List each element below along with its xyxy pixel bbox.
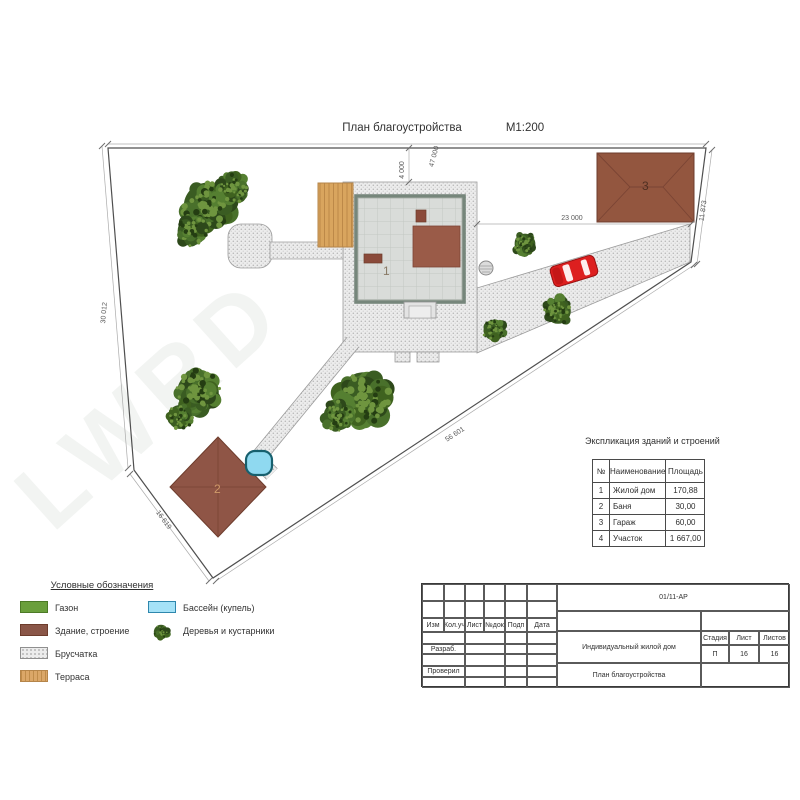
explication: Экспликация зданий и строений № Наименов… bbox=[585, 436, 720, 547]
cell-area: 30,00 bbox=[666, 499, 705, 515]
pool bbox=[246, 451, 272, 475]
legend-title: Условные обозначения bbox=[37, 580, 167, 591]
explication-table: № Наименование Площадь 1 Жилой дом 170,8… bbox=[592, 459, 705, 547]
terrace-deck bbox=[318, 183, 353, 247]
tb-sheet-title: План благоустройства bbox=[557, 663, 701, 688]
tree-icon bbox=[150, 621, 172, 643]
label-house: 1 bbox=[383, 264, 390, 278]
tb-stage-col: Листов bbox=[759, 631, 790, 645]
cell-num: 3 bbox=[593, 515, 610, 531]
tb-rev-col: Лист bbox=[465, 618, 484, 632]
cell-name: Гараж bbox=[610, 515, 666, 531]
col-area: Площадь bbox=[666, 460, 705, 483]
legend-label: Деревья и кустарники bbox=[183, 626, 274, 636]
col-name: Наименование bbox=[610, 460, 666, 483]
title-block: Изм Кол.уч Лист №док Подп Дата Разраб. П… bbox=[421, 583, 789, 687]
building-swatch bbox=[20, 624, 48, 636]
cell-area: 60,00 bbox=[666, 515, 705, 531]
dim-diagonal: 56 601 bbox=[444, 426, 466, 444]
table-header-row: № Наименование Площадь bbox=[593, 460, 705, 483]
legend-label: Здание, строение bbox=[55, 626, 129, 636]
roof-hatch bbox=[364, 254, 382, 263]
table-row: 1 Жилой дом 170,88 bbox=[593, 483, 705, 499]
dim-left: 30 012 bbox=[100, 302, 109, 324]
paving-swatch bbox=[20, 647, 48, 659]
explication-title: Экспликация зданий и строений bbox=[585, 436, 720, 446]
terrace-swatch bbox=[20, 670, 48, 682]
tb-project-name: Индивидуальный жилой дом bbox=[557, 631, 701, 663]
tb-role: Разраб. bbox=[422, 644, 465, 654]
pool-swatch bbox=[148, 601, 176, 613]
table-row: 2 Баня 30,00 bbox=[593, 499, 705, 515]
legend-label: Газон bbox=[55, 603, 78, 613]
table-row: 4 Участок 1 667,00 bbox=[593, 531, 705, 547]
tb-rev-col: Кол.уч bbox=[444, 618, 465, 632]
dim-house-offset: 4 000 bbox=[399, 161, 406, 179]
col-num: № bbox=[593, 460, 610, 483]
patio bbox=[228, 224, 272, 268]
label-garage: 3 bbox=[642, 179, 649, 193]
chimney bbox=[416, 210, 426, 222]
tb-rev-col: Подп bbox=[505, 618, 527, 632]
legend-label: Бассейн (купель) bbox=[183, 603, 254, 613]
legend-label: Брусчатка bbox=[55, 649, 97, 659]
label-bath: 2 bbox=[214, 482, 221, 496]
manhole bbox=[479, 261, 493, 275]
tb-rev-col: Дата bbox=[527, 618, 557, 632]
cell-name: Участок bbox=[610, 531, 666, 547]
legend-label: Терраса bbox=[55, 672, 90, 682]
cell-area: 170,88 bbox=[666, 483, 705, 499]
cell-num: 2 bbox=[593, 499, 610, 515]
cell-num: 1 bbox=[593, 483, 610, 499]
cell-name: Баня bbox=[610, 499, 666, 515]
cell-area: 1 667,00 bbox=[666, 531, 705, 547]
dim-garage-offset: 23 000 bbox=[561, 215, 583, 222]
tb-role: Проверил bbox=[422, 666, 465, 677]
table-row: 3 Гараж 60,00 bbox=[593, 515, 705, 531]
tb-stage-value: П bbox=[701, 645, 729, 663]
tb-rev-col: Изм bbox=[422, 618, 444, 632]
cell-num: 4 bbox=[593, 531, 610, 547]
tb-doc-number: 01/11-АР bbox=[557, 584, 790, 611]
lawn-swatch bbox=[20, 601, 48, 613]
site-plan-sheet: LWRD План благоустройства М1:200 bbox=[0, 0, 800, 800]
tb-stage-value: 16 bbox=[759, 645, 790, 663]
dim-right: 11 873 bbox=[699, 200, 709, 222]
apron-step bbox=[417, 352, 439, 362]
cell-name: Жилой дом bbox=[610, 483, 666, 499]
tb-stage-col: Стадия bbox=[701, 631, 729, 645]
tb-stage-value: 16 bbox=[729, 645, 759, 663]
tb-rev-col: №док bbox=[484, 618, 505, 632]
house-building bbox=[356, 196, 464, 318]
house-roof-upper bbox=[413, 226, 460, 267]
apron-step bbox=[395, 352, 410, 362]
tb-stage-col: Лист bbox=[729, 631, 759, 645]
